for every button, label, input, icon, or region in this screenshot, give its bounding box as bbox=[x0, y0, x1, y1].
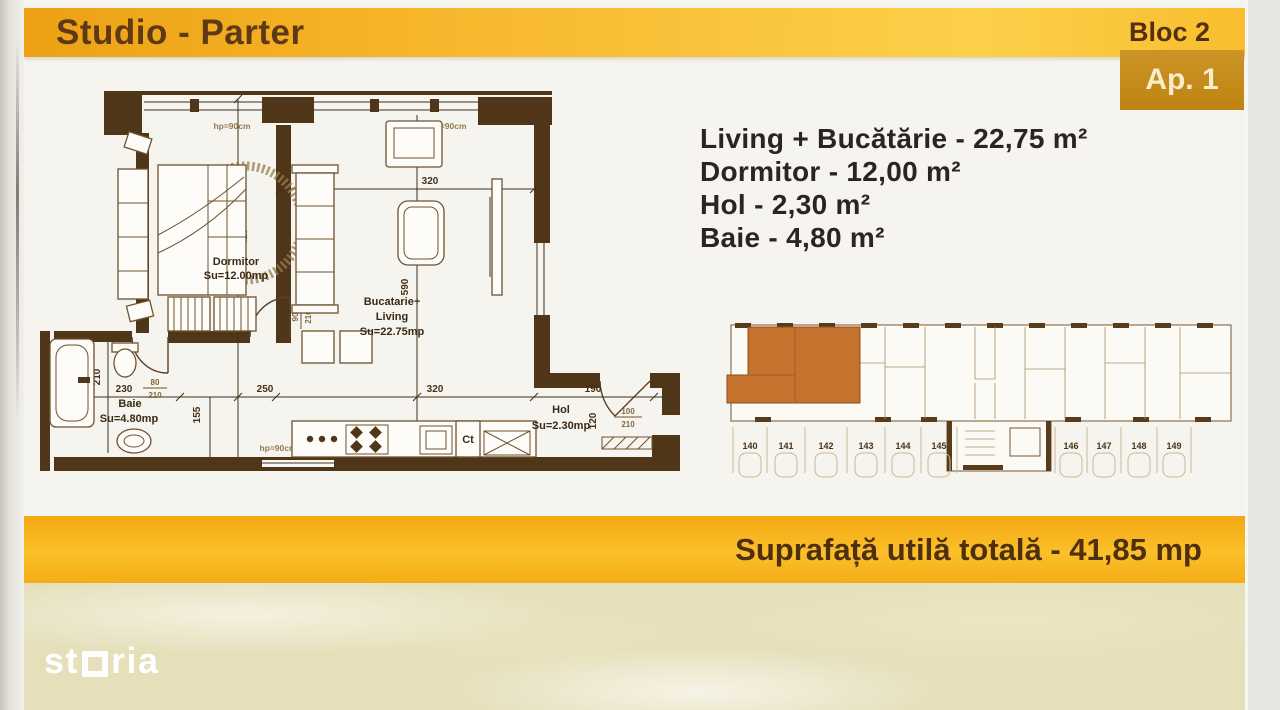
dim-living-320: 320 bbox=[427, 384, 444, 395]
room-label-hol: Hol bbox=[552, 404, 570, 416]
dim-dorm-250: 250 bbox=[257, 384, 274, 395]
total-area-label: Suprafață utilă totală - 41,85 mp bbox=[735, 532, 1202, 568]
parking-148: 148 bbox=[1131, 441, 1146, 451]
page-title: Studio - Parter bbox=[56, 13, 305, 53]
parking-145: 145 bbox=[931, 441, 946, 451]
parking-142: 142 bbox=[818, 441, 833, 451]
dim-living-590: 590 bbox=[400, 278, 411, 295]
photo-right-edge bbox=[1245, 0, 1280, 710]
floor-plan: 320 425 590 230 250 320 190 155 210 120 … bbox=[40, 85, 680, 505]
total-area-banner: Suprafață utilă totală - 41,85 mp bbox=[24, 516, 1248, 583]
site-plan-svg: 140 141 142 143 144 145 146 147 148 149 bbox=[725, 303, 1245, 481]
bath-sink bbox=[117, 429, 151, 453]
dim-hol-190: 190 bbox=[585, 384, 602, 395]
apartment-badge: Ap. 1 bbox=[1120, 50, 1244, 110]
room-area-living: Su=22.75mp bbox=[360, 326, 425, 338]
furniture-kitchen bbox=[292, 421, 536, 457]
dim-kitchen-155: 155 bbox=[192, 406, 203, 423]
parking-140: 140 bbox=[742, 441, 757, 451]
parking-149: 149 bbox=[1166, 441, 1181, 451]
brand-square-o-icon bbox=[82, 651, 108, 677]
parking-141: 141 bbox=[778, 441, 793, 451]
room-summary-line-baie: Baie - 4,80 m² bbox=[700, 221, 1088, 254]
boiler-label: Ct bbox=[462, 434, 474, 446]
parapet-label-1: hp=90cm bbox=[213, 121, 251, 131]
furniture-baie bbox=[50, 339, 151, 453]
photo-left-edge bbox=[0, 0, 24, 710]
room-summary: Living + Bucătărie - 22,75 m² Dormitor -… bbox=[700, 122, 1088, 254]
room-summary-line-living: Living + Bucătărie - 22,75 m² bbox=[700, 122, 1088, 155]
photo-bottom-area bbox=[24, 583, 1248, 710]
room-area-hol: Su=2.30mp bbox=[532, 420, 591, 432]
room-label-dormitor: Dormitor bbox=[213, 256, 260, 268]
svg-text:210: 210 bbox=[148, 391, 162, 400]
svg-text:80: 80 bbox=[151, 378, 160, 387]
couch bbox=[118, 169, 148, 299]
bloc-label: Bloc 2 bbox=[1129, 17, 1210, 48]
room-area-dormitor: Su=12.00mp bbox=[204, 270, 269, 282]
tv-board bbox=[492, 179, 502, 295]
storia-watermark: stria bbox=[44, 640, 160, 682]
room-label-living-2: Living bbox=[376, 311, 408, 323]
parking-144: 144 bbox=[895, 441, 910, 451]
room-summary-line-hol: Hol - 2,30 m² bbox=[700, 188, 1088, 221]
brand-suffix: ria bbox=[111, 640, 160, 682]
svg-text:210: 210 bbox=[621, 420, 635, 429]
listing-sheet: Studio - Parter Bloc 2 Ap. 1 Living + Bu… bbox=[0, 0, 1280, 710]
parking-143: 143 bbox=[858, 441, 873, 451]
stair-block bbox=[947, 421, 1051, 471]
page-spine-line bbox=[16, 40, 19, 420]
parking-146: 146 bbox=[1063, 441, 1078, 451]
site-plan: 140 141 142 143 144 145 146 147 148 149 bbox=[725, 303, 1245, 481]
top-banner: Studio - Parter Bloc 2 bbox=[24, 8, 1248, 57]
room-summary-line-dormitor: Dormitor - 12,00 m² bbox=[700, 155, 1088, 188]
room-label-baie: Baie bbox=[118, 398, 141, 410]
door-label-entry: 100 210 bbox=[614, 407, 642, 429]
toilet bbox=[114, 349, 136, 377]
dim-baie-230: 230 bbox=[116, 384, 133, 395]
room-label-living-1: Bucatarie+ bbox=[364, 296, 421, 308]
parking-147: 147 bbox=[1096, 441, 1111, 451]
dim-top-320: 320 bbox=[422, 176, 439, 187]
room-area-baie: Su=4.80mp bbox=[100, 413, 159, 425]
table bbox=[302, 331, 334, 363]
svg-text:100: 100 bbox=[621, 407, 635, 416]
brand-prefix: st bbox=[44, 640, 79, 682]
floor-plan-svg: 320 425 590 230 250 320 190 155 210 120 … bbox=[40, 85, 680, 505]
